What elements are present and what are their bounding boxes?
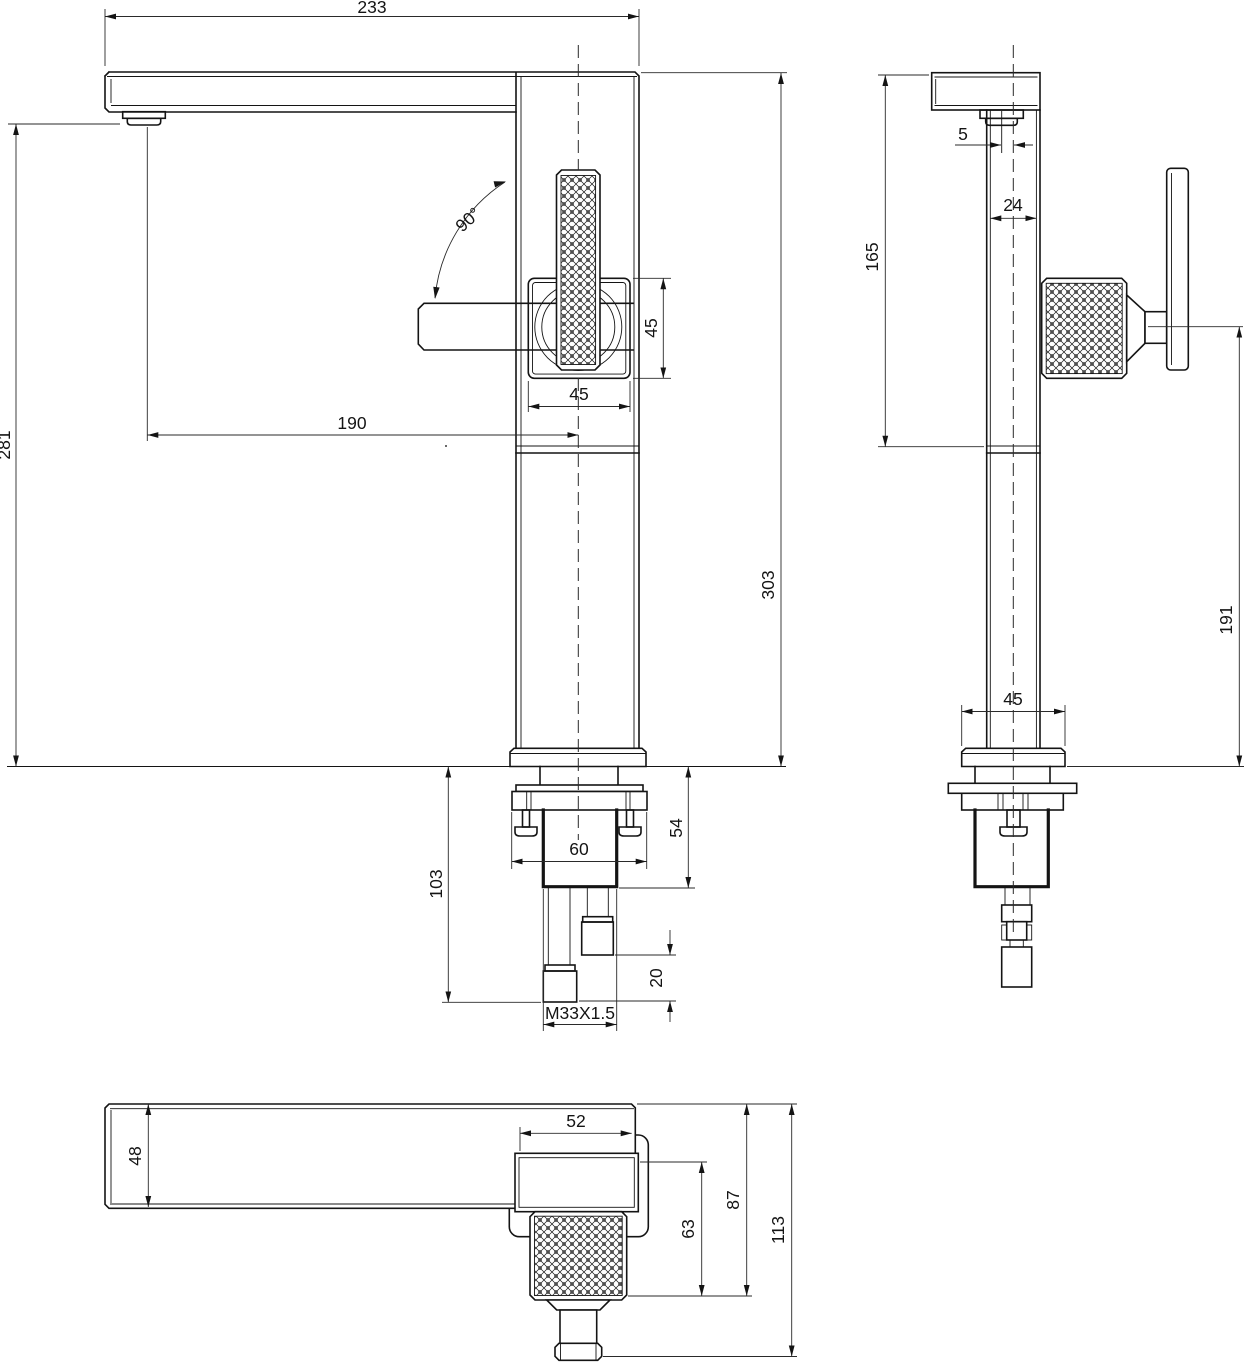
dim-label-54: 54 <box>666 818 686 838</box>
dim-height-to-outlet: 281 <box>0 124 120 767</box>
front-lever-knurled <box>557 170 601 370</box>
dim-outlet-offset: 5 <box>955 124 1033 145</box>
technical-drawing-canvas: 233 281 303 190 45 45 <box>0 0 1245 1365</box>
dim-label-60: 60 <box>569 839 589 859</box>
dim-label-20: 20 <box>646 968 666 988</box>
dim-label-113: 113 <box>768 1216 788 1244</box>
top-view: 48 52 63 87 113 <box>105 1104 797 1360</box>
dim-label-5: 5 <box>958 124 968 144</box>
dim-label-190: 190 <box>337 413 366 433</box>
front-body <box>446 73 639 749</box>
front-view: 233 281 303 190 45 45 <box>0 0 787 1031</box>
dim-label-m33: M33X1.5 <box>545 1003 615 1023</box>
dim-label-233: 233 <box>357 0 386 17</box>
dim-spout-reach: 190 <box>147 127 578 441</box>
side-handle-knob <box>1042 168 1189 378</box>
dim-label-45-h: 45 <box>569 384 588 404</box>
dim-handle-center-height: 191 <box>1067 327 1244 767</box>
dim-label-45-v: 45 <box>641 318 661 337</box>
top-knurled-handle <box>530 1212 627 1361</box>
dim-handle-square-width: 45 <box>528 381 630 412</box>
side-spout <box>932 73 1040 110</box>
dim-label-52: 52 <box>566 1111 585 1131</box>
front-supply-hoses <box>543 887 613 1002</box>
dim-overall-height: 303 <box>641 73 787 767</box>
dim-label-45-side: 45 <box>1003 689 1022 709</box>
dim-handle-rotation: 90° <box>432 178 507 299</box>
dim-label-63: 63 <box>678 1219 698 1238</box>
dim-label-191: 191 <box>1216 605 1236 634</box>
dim-label-303: 303 <box>758 570 778 599</box>
dim-label-281: 281 <box>0 430 14 459</box>
dim-label-165: 165 <box>862 242 882 271</box>
side-base-assembly <box>948 748 1076 886</box>
side-supply-hose <box>1002 887 1032 987</box>
top-valve-body <box>515 1153 638 1211</box>
dim-label-87: 87 <box>723 1190 743 1209</box>
dim-label-103: 103 <box>426 869 446 898</box>
front-aerator <box>123 112 166 125</box>
dim-overall-width: 233 <box>105 0 639 66</box>
dim-knurl-extent: 63 <box>628 1162 752 1296</box>
dim-thread-spec: M33X1.5 <box>543 889 616 1031</box>
dim-label-24: 24 <box>1003 195 1023 215</box>
dim-label-48: 48 <box>125 1146 145 1165</box>
dim-body-depth: 24 <box>990 195 1036 218</box>
side-view: 165 5 24 191 45 <box>862 45 1244 987</box>
dim-label-90deg: 90° <box>451 203 484 236</box>
dim-handle-extent: 87 <box>637 1104 797 1296</box>
